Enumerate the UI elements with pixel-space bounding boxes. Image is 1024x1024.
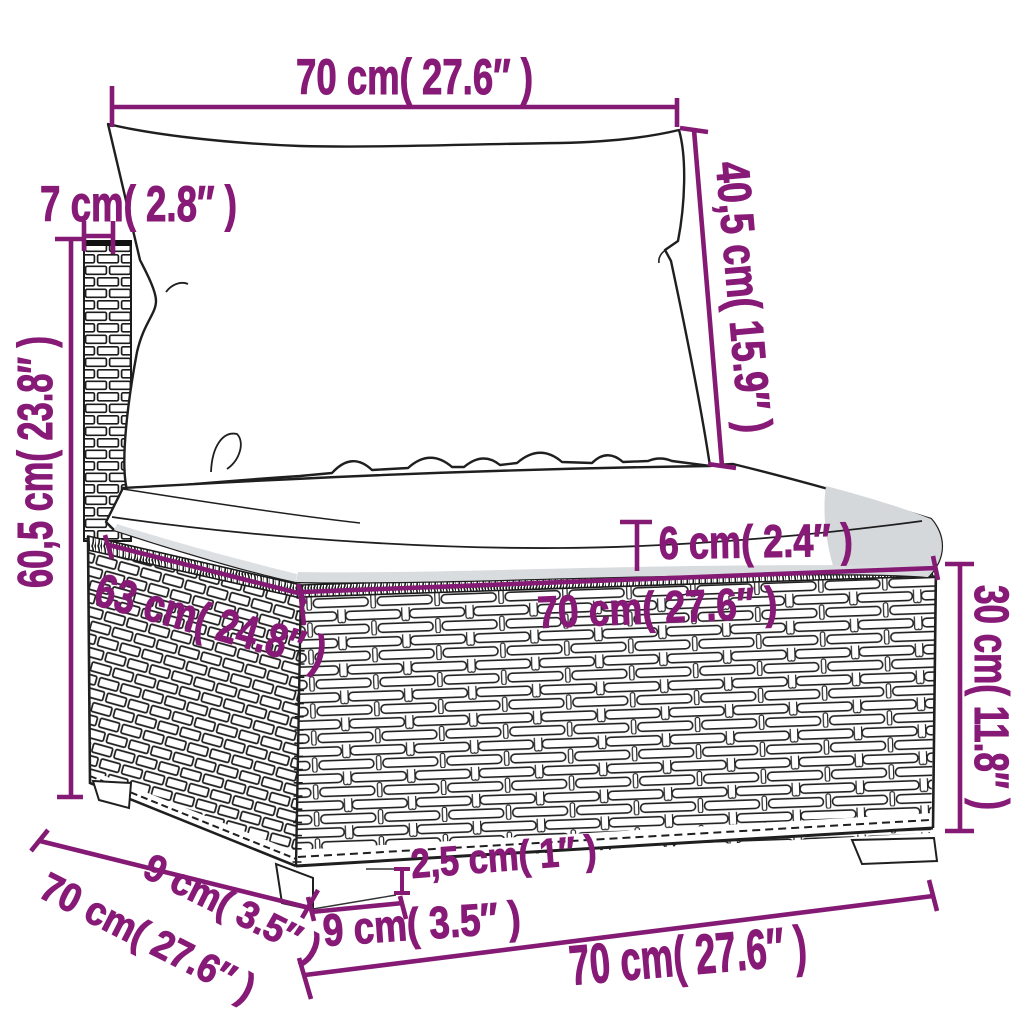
svg-text:30 cm( 11.8″ ): 30 cm( 11.8″ ) bbox=[964, 585, 1017, 810]
svg-text:60,5 cm( 23.8″ ): 60,5 cm( 23.8″ ) bbox=[9, 336, 63, 588]
svg-text:6 cm( 2.4″ ): 6 cm( 2.4″ ) bbox=[658, 514, 853, 569]
svg-text:70 cm( 27.6″ ): 70 cm( 27.6″ ) bbox=[536, 577, 778, 638]
svg-text:70 cm( 27.6″ ): 70 cm( 27.6″ ) bbox=[296, 49, 533, 105]
svg-text:7 cm( 2.8″ ): 7 cm( 2.8″ ) bbox=[40, 176, 237, 232]
